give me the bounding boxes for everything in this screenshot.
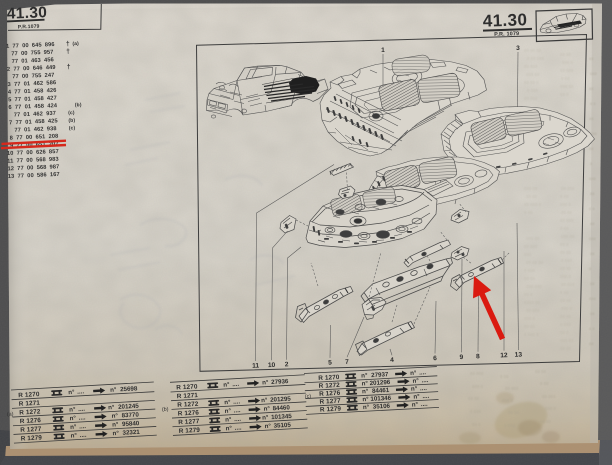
svg-text:....: .... [78,406,86,413]
svg-text:....: .... [234,424,242,431]
svg-text:5: 5 [328,359,332,366]
svg-text:8 88 888: 8 88 888 [527,56,545,61]
svg-text:101346: 101346 [370,395,392,403]
svg-text:8 88: 8 88 [524,210,533,215]
svg-text:888 88: 888 88 [560,84,574,89]
svg-text:R 1276: R 1276 [178,409,200,417]
svg-text:8 88: 8 88 [560,194,569,199]
svg-text:88 88 8: 88 88 8 [524,80,539,85]
svg-text:88 88: 88 88 [524,324,536,329]
svg-text:n°: n° [112,421,119,428]
svg-text:201245: 201245 [118,403,140,411]
svg-text:R 1279: R 1279 [320,405,342,413]
svg-text:888 88: 888 88 [526,236,540,241]
svg-text:88 8: 88 8 [560,242,569,247]
svg-text:25698: 25698 [120,385,138,393]
svg-text:8 888: 8 888 [561,258,573,263]
svg-text:8 8: 8 8 [590,101,596,106]
svg-text:88 888: 88 888 [470,371,484,376]
svg-text:88 88: 88 88 [560,298,572,303]
svg-text:88 88: 88 88 [560,250,572,255]
svg-text:88: 88 [590,221,595,226]
svg-text:R 1276: R 1276 [319,390,341,398]
svg-text:8 888 8: 8 888 8 [524,332,539,337]
svg-text:88: 88 [590,251,595,256]
svg-text:R 1277: R 1277 [178,418,200,426]
svg-text:....: .... [232,381,240,388]
svg-text:888 8: 888 8 [560,202,572,207]
svg-text:(b): (b) [162,407,169,413]
svg-text:8 888: 8 888 [527,88,539,93]
svg-text:n°: n° [70,432,77,439]
svg-text:88: 88 [589,341,594,346]
svg-text:83770: 83770 [121,411,139,419]
svg-text:13: 13 [515,351,523,358]
svg-text:88: 88 [589,86,594,91]
svg-text:n°: n° [225,408,232,415]
svg-text:12: 12 [500,352,508,359]
svg-text:88 88: 88 88 [560,346,572,351]
svg-text:888: 888 [524,252,532,257]
svg-text:888 88: 888 88 [526,72,540,77]
svg-text:201295: 201295 [270,396,292,404]
svg-text:1: 1 [381,47,385,54]
svg-text:88 8: 88 8 [560,330,569,335]
svg-text:888 88: 888 88 [560,338,574,343]
svg-text:n°: n° [70,415,77,422]
svg-text:88 888: 88 888 [542,394,556,399]
svg-text:88 8: 88 8 [472,422,481,427]
svg-text:R 1271: R 1271 [177,392,199,400]
svg-text:84460: 84460 [272,404,290,412]
svg-text:8 888: 8 888 [524,268,536,273]
svg-text:88 88 88: 88 88 88 [526,260,544,265]
svg-text:88 88: 88 88 [540,419,552,424]
svg-text:88: 88 [590,311,595,316]
svg-text:88 98 88: 88 98 88 [524,48,542,53]
svg-text:....: .... [78,414,86,421]
svg-text:....: .... [420,385,428,392]
svg-text:8 88: 8 88 [560,290,569,295]
svg-text:88 888 8: 88 888 8 [524,202,542,207]
svg-text:n°: n° [411,385,418,392]
svg-text:n°: n° [412,401,419,408]
svg-text:95840: 95840 [122,420,140,428]
svg-text:8 888: 8 888 [504,423,516,428]
svg-text:88: 88 [589,56,594,61]
svg-text:n°: n° [225,416,232,423]
svg-text:88 88: 88 88 [560,266,572,271]
svg-text:....: .... [422,393,430,400]
svg-text:n°: n° [412,377,419,384]
svg-text:n°: n° [110,386,117,393]
svg-text:88: 88 [590,281,595,286]
svg-text:n°: n° [413,393,420,400]
svg-text:32321: 32321 [122,429,140,437]
svg-text:88 88: 88 88 [560,314,572,319]
svg-text:888 8: 888 8 [545,406,557,411]
svg-text:88: 88 [590,191,595,196]
svg-text:88 88: 88 88 [508,410,520,415]
svg-text:3: 3 [516,45,520,52]
svg-text:(b): (b) [68,118,75,124]
svg-text:888 88: 888 88 [524,186,538,191]
svg-text:n°: n° [410,370,417,377]
svg-text:R 1272: R 1272 [319,382,341,390]
svg-text:88 888: 88 888 [524,244,538,249]
svg-text:(c): (c) [69,125,76,131]
svg-text:....: .... [79,423,87,430]
svg-text:88 888: 88 888 [524,64,538,69]
svg-text:n°: n° [263,405,270,412]
svg-text:n°: n° [225,425,232,432]
svg-text:88 88: 88 88 [526,194,538,199]
svg-text:n°: n° [361,380,368,387]
svg-text:R 1272: R 1272 [19,408,41,416]
svg-text:888 8: 888 8 [524,316,536,321]
svg-text:†: † [66,41,70,48]
svg-text:†: † [66,48,70,55]
svg-text:88 888: 88 888 [561,282,575,287]
svg-text:....: .... [77,388,85,395]
svg-text:8 88: 8 88 [561,76,570,81]
svg-text:8: 8 [476,353,480,360]
svg-text:....: .... [79,432,87,439]
svg-text:888 888: 888 888 [526,284,542,289]
svg-text:27936: 27936 [271,378,289,386]
svg-text:8 88: 8 88 [540,381,549,386]
svg-text:....: .... [421,401,429,408]
svg-text:88 8: 88 8 [560,92,569,97]
svg-text:11: 11 [252,362,260,369]
svg-text:n°: n° [111,413,118,420]
svg-text:201296: 201296 [369,379,391,387]
svg-text:....: .... [233,398,241,405]
svg-text:R 1277: R 1277 [20,426,42,434]
svg-text:7: 7 [345,359,349,366]
svg-text:n°: n° [68,389,75,396]
svg-text:n°: n° [362,396,369,403]
svg-text:888: 888 [589,236,596,241]
svg-text:(a): (a) [72,41,79,47]
svg-text:n°: n° [262,414,269,421]
svg-text:8 88: 8 88 [500,374,509,379]
svg-text:(c): (c) [305,394,312,400]
svg-text:n°: n° [264,423,271,430]
svg-text:27937: 27937 [371,371,389,379]
svg-text:(c): (c) [68,110,75,116]
svg-text:888: 888 [589,176,596,181]
svg-text:n°: n° [69,406,76,413]
svg-text:n°: n° [261,397,268,404]
svg-text:R 1279: R 1279 [179,427,201,435]
svg-text:....: .... [234,407,242,414]
svg-text:R 1270: R 1270 [318,374,340,382]
svg-text:101345: 101345 [271,413,293,421]
svg-text:R 1279: R 1279 [21,434,43,442]
svg-text:888 8: 888 8 [472,384,484,389]
svg-text:8 88: 8 88 [560,226,569,231]
svg-text:888: 888 [589,296,596,301]
svg-text:R 1271: R 1271 [19,400,41,408]
svg-text:n°: n° [112,430,119,437]
svg-text:....: .... [234,416,242,423]
svg-text:n°: n° [363,404,370,411]
svg-text:88 888: 88 888 [526,308,540,313]
svg-text:R 1272: R 1272 [177,401,199,409]
svg-text:n°: n° [362,388,369,395]
svg-text:88 888: 88 888 [505,386,519,391]
svg-text:6: 6 [433,355,437,362]
svg-text:R 1270: R 1270 [18,391,40,399]
svg-text:888 8: 888 8 [502,398,514,403]
svg-text:888: 888 [590,71,597,76]
svg-text:n°: n° [361,372,368,379]
svg-text:88 888: 88 888 [560,68,574,73]
svg-text:R 1276: R 1276 [20,417,42,425]
svg-text:8888 88: 8888 88 [524,300,540,305]
svg-text:....: .... [419,369,427,376]
svg-text:P.R.1079: P.R.1079 [18,24,40,31]
svg-text:8 8: 8 8 [589,326,595,331]
svg-text:88: 88 [589,116,594,121]
svg-text:888 88: 888 88 [561,234,575,239]
svg-text:88 88: 88 88 [524,276,536,281]
svg-text:35106: 35106 [373,403,391,411]
svg-text:88: 88 [589,146,594,151]
svg-text:....: .... [421,377,429,384]
svg-text:8 888: 8 888 [560,322,572,327]
svg-text:n°: n° [224,399,231,406]
svg-text:R 1270: R 1270 [176,383,198,391]
svg-text:8 8: 8 8 [589,206,595,211]
svg-text:88 888: 88 888 [561,186,575,191]
svg-text:35105: 35105 [273,422,291,430]
svg-text:88 88: 88 88 [468,396,480,401]
svg-text:n°: n° [262,379,269,386]
svg-text:41.30: 41.30 [483,10,528,30]
svg-text:†: † [67,64,71,71]
svg-text:84461: 84461 [372,387,390,395]
svg-text:888 8: 888 8 [561,306,573,311]
svg-text:88 8: 88 8 [524,292,533,297]
svg-text:88 88: 88 88 [561,210,573,215]
svg-text:8 888: 8 888 [470,409,482,414]
svg-text:2: 2 [285,361,289,368]
svg-text:888 8: 888 8 [562,60,574,65]
svg-text:9: 9 [459,354,463,361]
svg-text:88 88: 88 88 [560,52,572,57]
svg-text:n°: n° [108,404,115,411]
svg-text:888 8: 888 8 [560,274,572,279]
svg-text:n°: n° [70,424,77,431]
svg-text:88 888: 88 888 [524,96,538,101]
svg-text:88 888: 88 888 [560,218,574,223]
svg-text:R 1277: R 1277 [319,398,341,406]
svg-text:4: 4 [390,357,394,364]
svg-text:88 88: 88 88 [535,369,547,374]
svg-text:n°: n° [223,381,230,388]
svg-text:10: 10 [268,362,276,369]
svg-text:(b): (b) [75,102,82,108]
